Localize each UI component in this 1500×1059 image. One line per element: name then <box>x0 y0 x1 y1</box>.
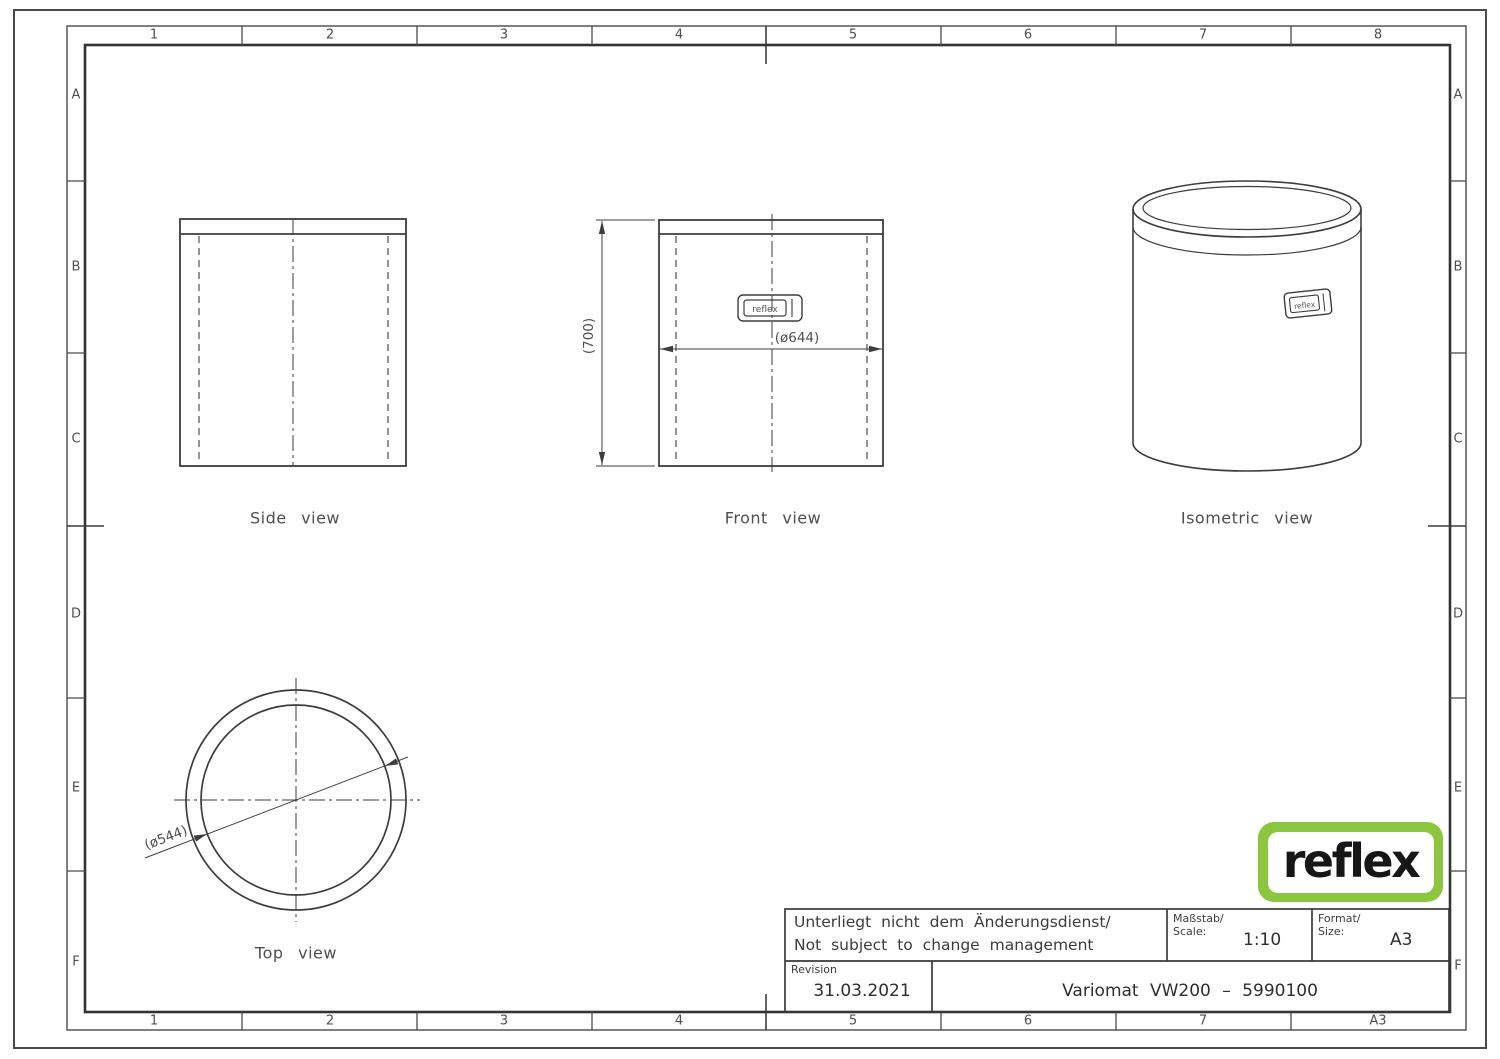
grid-row-label: C <box>1453 432 1462 447</box>
front-height-dimension <box>596 220 655 466</box>
grid-col-label: A3 <box>1369 1014 1386 1029</box>
grid-col-label: 6 <box>1024 28 1032 43</box>
side-view-caption: Side view <box>250 509 340 528</box>
grid-row-label: E <box>1454 781 1462 796</box>
grid-row-label: F <box>1454 959 1461 974</box>
part-number: Variomat VW200 – 5990100 <box>1062 981 1318 1001</box>
change-note-line2: Not subject to change management <box>794 936 1093 954</box>
grid-col-label: 7 <box>1199 28 1207 43</box>
grid-row-label: F <box>72 955 79 970</box>
format-value: A3 <box>1390 930 1412 950</box>
change-note-line1: Unterliegt nicht dem Änderungsdienst/ <box>794 913 1111 931</box>
isometric-nameplate: reflex <box>1284 289 1332 319</box>
revision-date: 31.03.2021 <box>813 981 910 1001</box>
grid-col-label: 4 <box>675 1014 683 1029</box>
centring-marks <box>67 26 1466 1030</box>
grid-col-label: 3 <box>500 28 508 43</box>
scale-value: 1:10 <box>1243 930 1281 950</box>
grid-row-label: B <box>1454 260 1463 275</box>
grid-row-label: D <box>71 607 81 622</box>
grid-row-label: C <box>71 432 80 447</box>
grid-col-label: 2 <box>326 1014 334 1029</box>
grid-row-label: A <box>1454 88 1463 103</box>
svg-text:reflex: reflex <box>1294 300 1317 311</box>
scale-label-en: Scale: <box>1173 925 1206 938</box>
reflex-logo-inner: reflex <box>1268 832 1434 893</box>
svg-text:reflex: reflex <box>752 305 778 315</box>
revision-label: Revision <box>791 963 837 976</box>
grid-row-label: D <box>1453 607 1463 622</box>
grid-ticks <box>67 26 1466 1030</box>
isometric-view: reflex <box>1133 181 1361 471</box>
grid-row-label: E <box>72 781 80 796</box>
grid-col-label: 3 <box>500 1014 508 1029</box>
top-view <box>145 678 420 922</box>
front-width-dim-label: (ø644) <box>775 330 820 346</box>
side-view <box>180 219 406 466</box>
grid-col-label: 6 <box>1024 1014 1032 1029</box>
scale-label-de: Maßstab/ <box>1173 912 1224 925</box>
grid-col-label: 2 <box>326 28 334 43</box>
reflex-logo: reflex <box>1258 822 1443 902</box>
top-diameter-dimension <box>145 757 408 858</box>
grid-row-label: A <box>72 88 81 103</box>
isometric-view-caption: Isometric view <box>1181 509 1313 528</box>
reflex-logo-text: reflex <box>1283 834 1419 888</box>
drawing-sheet: reflex <box>0 0 1500 1059</box>
grid-col-label: 4 <box>675 28 683 43</box>
grid-col-label: 5 <box>849 1014 857 1029</box>
grid-col-label: 8 <box>1374 28 1382 43</box>
grid-row-label: B <box>72 260 81 275</box>
grid-col-label: 1 <box>150 28 158 43</box>
grid-col-label: 1 <box>150 1014 158 1029</box>
grid-col-label: 5 <box>849 28 857 43</box>
front-nameplate: reflex <box>738 295 802 321</box>
grid-col-label: 7 <box>1199 1014 1207 1029</box>
front-view: reflex <box>596 214 883 472</box>
format-label-de: Format/ <box>1318 912 1360 925</box>
front-width-dimension <box>660 346 882 352</box>
format-label-en: Size: <box>1318 925 1344 938</box>
front-view-caption: Front view <box>725 509 821 528</box>
top-view-caption: Top view <box>255 944 337 963</box>
front-height-dim-label: (700) <box>581 318 597 354</box>
